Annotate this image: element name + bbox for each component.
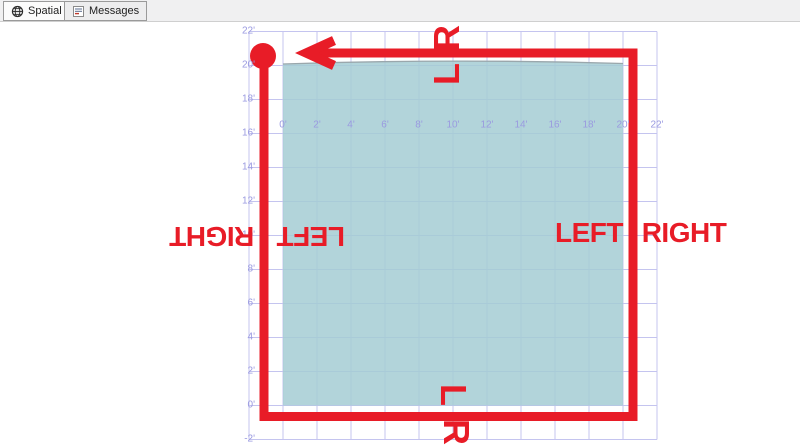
y-axis-tick-label: 18' [221,93,255,104]
direction-label-top-outside: R [429,25,465,51]
y-axis-tick-label: 22' [221,25,255,36]
results-tab-bar: Spatial results Messages [0,0,800,22]
x-axis-tick-label: 18' [582,120,595,131]
direction-label-bottom-outside: R [438,419,474,445]
x-axis-tick-label: 20' [616,120,629,131]
x-axis-tick-label: 8' [415,120,422,131]
direction-label-right-inside: LEFT [555,219,623,247]
spatial-viewport[interactable]: 0'2'4'6'8'10'12'14'16'18'20'22'22'20'18'… [0,22,800,446]
x-axis-tick-label: 2' [313,120,320,131]
globe-icon [11,5,24,18]
direction-label-right-outside: RIGHT [642,219,727,247]
x-axis-tick-label: 22' [650,120,663,131]
y-axis-tick-label: 16' [221,127,255,138]
y-axis-tick-label: 14' [221,161,255,172]
x-axis-tick-label: 14' [514,120,527,131]
x-axis-tick-label: 6' [381,120,388,131]
x-axis-tick-label: 16' [548,120,561,131]
spatial-results-pane: Spatial results Messages 0'2'4'6'8'10'12… [0,0,800,446]
y-axis-tick-label: 4' [221,331,255,342]
messages-icon [72,5,85,18]
direction-label-bottom-inside: L [435,384,471,406]
tab-label: Messages [89,5,139,17]
x-axis-tick-label: 0' [279,120,286,131]
y-axis-tick-label: 20' [221,59,255,70]
direction-label-top-inside: L [429,63,465,85]
y-axis-tick-label: 2' [221,365,255,376]
y-axis-tick-label: -2' [221,433,255,444]
x-axis-tick-label: 10' [446,120,459,131]
direction-label-left-inside: LEFT [277,222,345,250]
x-axis-tick-label: 12' [480,120,493,131]
y-axis-tick-label: 12' [221,195,255,206]
tab-messages[interactable]: Messages [64,1,147,21]
y-axis-tick-label: 6' [221,297,255,308]
y-axis-tick-label: 8' [221,263,255,274]
direction-label-left-outside: RIGHT [170,222,255,250]
x-axis-tick-label: 4' [347,120,354,131]
y-axis-tick-label: 0' [221,399,255,410]
